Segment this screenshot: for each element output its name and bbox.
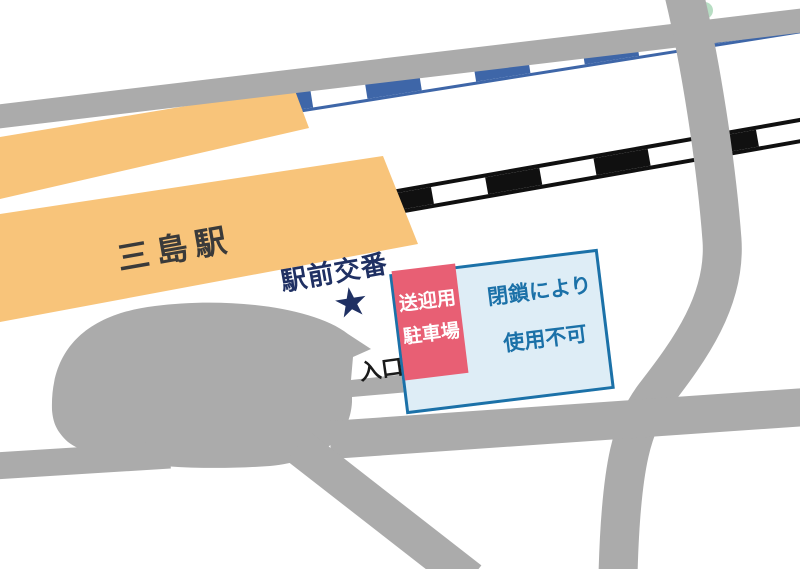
pickup-parking-line1: 送迎用: [398, 288, 457, 316]
road-diagonal: [298, 446, 470, 569]
police-box-star-icon: ★: [330, 280, 372, 325]
closed-area-line1: 閉鎖により: [486, 274, 593, 310]
road-left: [0, 455, 170, 466]
pickup-parking-label: 送迎用 駐車場: [397, 282, 462, 354]
road-vertical-curve: [618, 0, 722, 569]
closed-area-label: 閉鎖により 使用不可: [485, 262, 601, 370]
station-area-map: 閉鎖により 使用不可 送迎用 駐車場 三島駅 駅前交番 ★ 入口: [0, 0, 800, 569]
closed-area-line2: 使用不可: [502, 323, 588, 356]
parking-entrance-label: 入口: [357, 349, 405, 387]
road-main-horizontal: [330, 407, 800, 440]
pickup-parking-box: 送迎用 駐車場: [392, 264, 469, 381]
pickup-parking-line2: 駐車場: [402, 321, 461, 349]
